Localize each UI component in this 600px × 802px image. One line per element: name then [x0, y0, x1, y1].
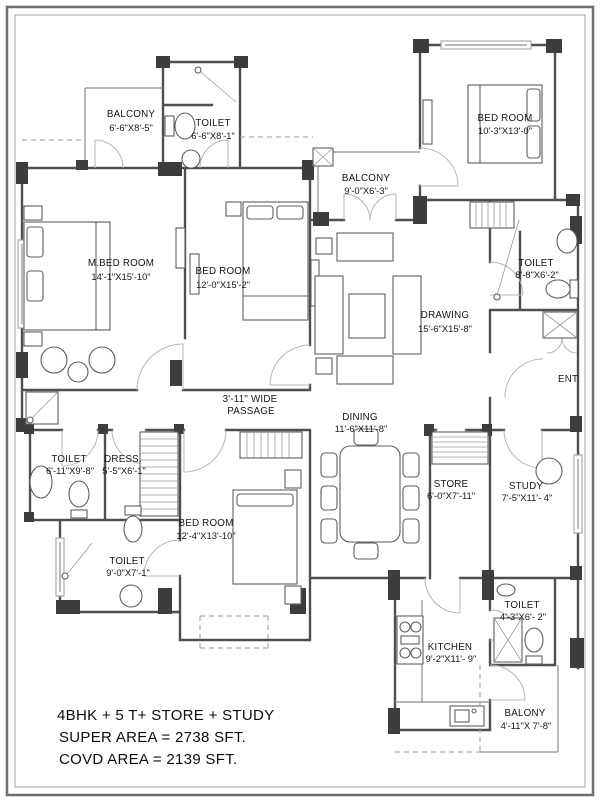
dims-store: 6'-0"X7'-11" [427, 490, 475, 501]
lift-shaft-icon [543, 312, 577, 338]
bed-icon-center [226, 202, 308, 320]
wardrobe-hatch-bedroom [240, 432, 302, 458]
label-store: STORE [434, 479, 469, 490]
label-dress: DRESS. [104, 454, 142, 465]
label-kitchen: KITCHEN [428, 642, 472, 653]
floor-plan-sheet: BALCONY 6'-6"X8'-5" TOILET 6'-6"X8'-1" B… [0, 0, 600, 802]
dims-bedroom-top-right: 10'-3"X13'-0" [478, 125, 532, 136]
dims-drawing: 15'-6"X15'-8" [418, 323, 472, 334]
dims-master-bedroom: 14'-1"X15'-10" [91, 271, 150, 282]
label-toilet-top-left: TOILET [195, 118, 230, 129]
label-toilet-top-right: TOILET [518, 258, 553, 269]
bed-icon-top-right [423, 85, 542, 163]
dims-toilet-bottom-left: 9'-0"X7'-1" [106, 567, 150, 578]
label-master-bedroom: M.BED ROOM [88, 258, 154, 269]
label-passage-line2: PASSAGE [227, 406, 275, 417]
plan-summary: 4BHK + 5 T+ STORE + STUDY SUPER AREA = 2… [57, 707, 274, 768]
sink-icon [450, 706, 484, 726]
label-passage-line1: 3'-11" WIDE [223, 394, 278, 405]
balcony-railings [85, 88, 558, 752]
bed-icon-bottom [233, 470, 301, 604]
label-toilet-left: TOILET [51, 454, 86, 465]
dims-balcony-top-left: 6'-6"X8'-5" [109, 122, 153, 133]
label-bedroom-top-right: BED ROOM [478, 113, 533, 124]
stairs-hatch-store [432, 432, 488, 464]
label-drawing: DRAWING [421, 310, 469, 321]
summary-covered-area: COVD AREA = 2139 SFT. [59, 751, 237, 768]
dims-toilet-left: 6'-11"X9'-8" [46, 465, 94, 476]
dims-balcony-bottom-right: 4'-11"X 7'-8" [501, 720, 552, 731]
shower-icon-master [26, 392, 58, 424]
label-dining: DINING [342, 412, 378, 423]
dims-toilet-top-left: 6'-6"X8'-1" [191, 130, 235, 141]
sofa-set-icon [315, 233, 421, 384]
dims-bedroom-center: 12'-0"X15'-2" [196, 279, 250, 290]
dims-bedroom-bottom: 12'-4"X13'-10" [176, 530, 235, 541]
toilet-fixtures-bottom-right [494, 584, 543, 664]
lounge-chairs-icon [41, 347, 115, 382]
label-balcony-bottom-right: BALONY [505, 708, 546, 719]
label-toilet-bottom-left: TOILET [109, 556, 144, 567]
dims-dress: 5'-5"X6'-1" [102, 465, 146, 476]
label-study: STUDY [509, 481, 543, 492]
stove-icon [397, 616, 423, 664]
dims-toilet-bottom-right: 4'-3"X6'- 2" [500, 611, 546, 622]
dining-table-icon [321, 429, 419, 559]
label-balcony-top-left: BALCONY [107, 109, 155, 120]
dims-kitchen: 9'-2"X11'- 9" [426, 653, 477, 664]
label-balcony-center: BALCONY [342, 173, 390, 184]
dims-balcony-center: 9'-0"X6'-3" [344, 185, 388, 196]
label-entrance: ENT. [558, 374, 580, 385]
label-bedroom-center: BED ROOM [196, 266, 251, 277]
duct-shaft-icon [313, 148, 333, 166]
dims-toilet-top-right: 8'-8"X6'-2" [515, 269, 559, 280]
floor-plan-drawing: BALCONY 6'-6"X8'-5" TOILET 6'-6"X8'-1" B… [0, 0, 600, 802]
dims-dining: 11'-6"X11'-8" [335, 423, 388, 434]
summary-configuration: 4BHK + 5 T+ STORE + STUDY [57, 707, 274, 724]
label-toilet-bottom-right: TOILET [504, 600, 539, 611]
stairs-hatch-drawing [470, 202, 514, 228]
label-bedroom-bottom: BED ROOM [179, 518, 234, 529]
dims-study: 7'-5"X11'- 4" [502, 492, 553, 503]
summary-super-area: SUPER AREA = 2738 SFT. [59, 729, 246, 746]
